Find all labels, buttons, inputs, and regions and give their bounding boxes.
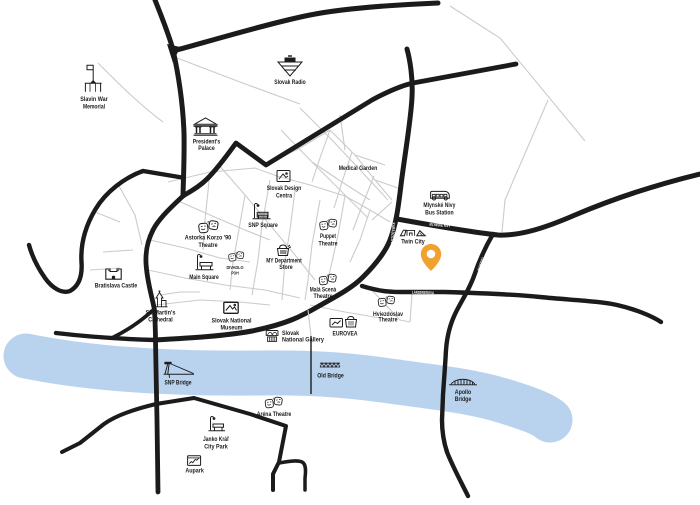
svg-text:Slovak National: Slovak National bbox=[212, 318, 252, 325]
svg-text:Cathedral: Cathedral bbox=[148, 316, 173, 323]
svg-text:Museum: Museum bbox=[221, 325, 243, 332]
svg-text:Theatre: Theatre bbox=[379, 317, 398, 324]
svg-text:Mlynské Nivy: Mlynské Nivy bbox=[423, 202, 455, 209]
svg-text:Slavin War: Slavin War bbox=[80, 96, 108, 103]
svg-text:EUROVEA: EUROVEA bbox=[333, 330, 358, 337]
svg-text:Aréna Theatre: Aréna Theatre bbox=[257, 411, 292, 418]
svg-text:LANDEREROVA: LANDEREROVA bbox=[412, 290, 434, 296]
svg-text:Apollo: Apollo bbox=[455, 389, 472, 396]
svg-text:Centra: Centra bbox=[276, 193, 292, 200]
svg-text:Bratislava Castle: Bratislava Castle bbox=[95, 283, 138, 290]
svg-text:SNP Square: SNP Square bbox=[248, 222, 278, 229]
svg-text:Aupark: Aupark bbox=[185, 467, 204, 474]
svg-text:Theatre: Theatre bbox=[314, 293, 333, 300]
svg-text:City Park: City Park bbox=[204, 444, 228, 451]
svg-text:Puppet: Puppet bbox=[320, 233, 337, 240]
svg-text:Bus Station: Bus Station bbox=[425, 210, 454, 217]
svg-text:Bridge: Bridge bbox=[455, 396, 472, 403]
svg-text:POH: POH bbox=[231, 271, 239, 276]
svg-text:Old Bridge: Old Bridge bbox=[317, 373, 344, 380]
svg-text:Twin City: Twin City bbox=[401, 239, 425, 246]
svg-text:Theatre: Theatre bbox=[199, 242, 218, 249]
svg-text:Slovak Design: Slovak Design bbox=[267, 185, 302, 192]
svg-text:Astorka Korzo '90: Astorka Korzo '90 bbox=[185, 235, 232, 242]
svg-text:Palace: Palace bbox=[198, 145, 215, 152]
svg-text:DIVADLO: DIVADLO bbox=[227, 265, 244, 270]
svg-text:SNP Bridge: SNP Bridge bbox=[165, 380, 192, 387]
svg-text:Slovak Radio: Slovak Radio bbox=[274, 79, 306, 86]
svg-text:National Gallery: National Gallery bbox=[282, 337, 324, 344]
svg-text:Theatre: Theatre bbox=[319, 241, 338, 248]
svg-text:Janko Kráľ: Janko Kráľ bbox=[203, 436, 229, 443]
svg-text:Medical Garden: Medical Garden bbox=[339, 165, 378, 172]
svg-text:Store: Store bbox=[279, 264, 293, 271]
svg-text:Main Square: Main Square bbox=[189, 274, 219, 281]
svg-text:Memorial: Memorial bbox=[83, 104, 105, 111]
